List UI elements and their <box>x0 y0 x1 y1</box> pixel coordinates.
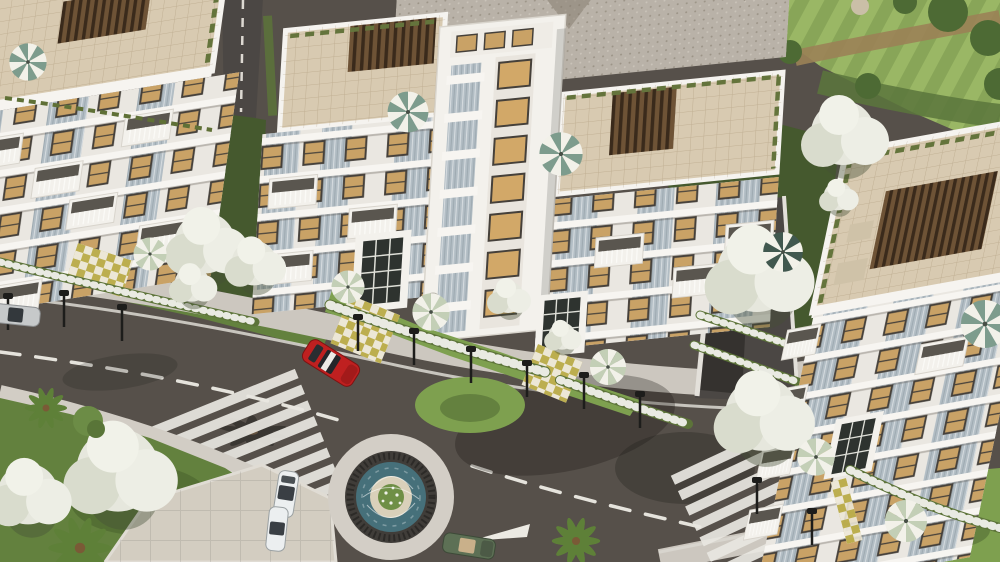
umbrella-ground-6 <box>885 500 927 542</box>
roundabout <box>328 434 454 560</box>
lawn-pocket-shade <box>440 394 500 422</box>
center-pergola-right-slats <box>609 87 677 155</box>
umbrella-center-roof-1 <box>388 92 429 133</box>
umbrella-ground-5 <box>797 438 834 475</box>
umbrella-left-roof <box>9 43 46 80</box>
white-car-2 <box>265 506 288 552</box>
umbrella-ground-1 <box>133 237 166 270</box>
umbrella-ground-2 <box>332 271 365 304</box>
scene <box>0 0 1000 562</box>
center-pergola-left-slats <box>348 17 437 72</box>
umbrella-ground-4 <box>590 349 626 385</box>
umbrella-ground-3 <box>412 293 449 330</box>
aerial-render <box>0 0 1000 562</box>
umbrella-courtyard <box>763 232 803 272</box>
umbrella-center-roof-2 <box>539 132 582 175</box>
